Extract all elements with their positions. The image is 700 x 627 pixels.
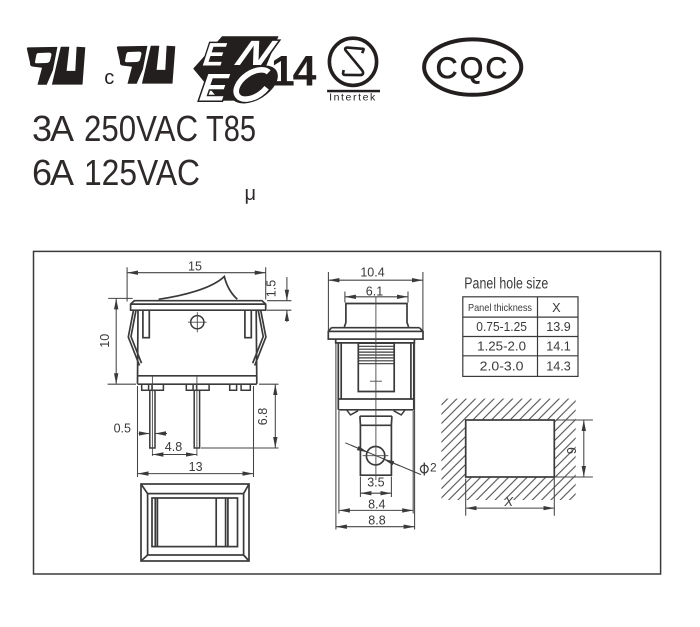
svg-text:3A: 3A [32, 108, 74, 149]
svg-text:E: E [197, 67, 231, 110]
svg-text:250VAC: 250VAC [84, 108, 198, 149]
svg-text:14.1: 14.1 [546, 340, 571, 354]
svg-text:0.75-1.25: 0.75-1.25 [476, 320, 527, 334]
svg-text:6.8: 6.8 [256, 408, 270, 425]
svg-text:Panel hole size: Panel hole size [464, 275, 548, 292]
svg-text:8.8: 8.8 [368, 513, 385, 527]
svg-text:14.3: 14.3 [546, 359, 571, 373]
svg-text:μ: μ [245, 183, 257, 205]
svg-text:Intertek: Intertek [329, 92, 377, 104]
svg-text:X: X [503, 494, 514, 509]
svg-text:13: 13 [189, 460, 203, 474]
svg-text:14: 14 [271, 47, 317, 95]
svg-text:c: c [104, 67, 114, 89]
svg-text:1.25-2.0: 1.25-2.0 [477, 340, 526, 354]
svg-text:125VAC: 125VAC [84, 152, 200, 193]
svg-text:3.5: 3.5 [367, 475, 384, 489]
svg-text:T85: T85 [206, 108, 256, 149]
svg-text:9: 9 [565, 447, 579, 454]
svg-text:4.8: 4.8 [165, 440, 182, 454]
svg-text:6A: 6A [32, 152, 74, 193]
svg-text:15: 15 [188, 259, 202, 273]
svg-text:Panel thickness: Panel thickness [468, 303, 532, 314]
svg-text:10.4: 10.4 [360, 265, 384, 279]
svg-text:1.5: 1.5 [265, 280, 279, 297]
svg-text:2.0-3.0: 2.0-3.0 [480, 359, 524, 373]
svg-text:X: X [552, 301, 561, 315]
svg-text:6.1: 6.1 [366, 284, 383, 298]
svg-text:13.9: 13.9 [546, 320, 571, 334]
svg-text:0.5: 0.5 [114, 422, 131, 436]
svg-text:2: 2 [430, 461, 437, 475]
svg-text:CQC: CQC [436, 52, 510, 85]
svg-text:10: 10 [98, 334, 112, 348]
svg-text:8.4: 8.4 [368, 497, 385, 511]
